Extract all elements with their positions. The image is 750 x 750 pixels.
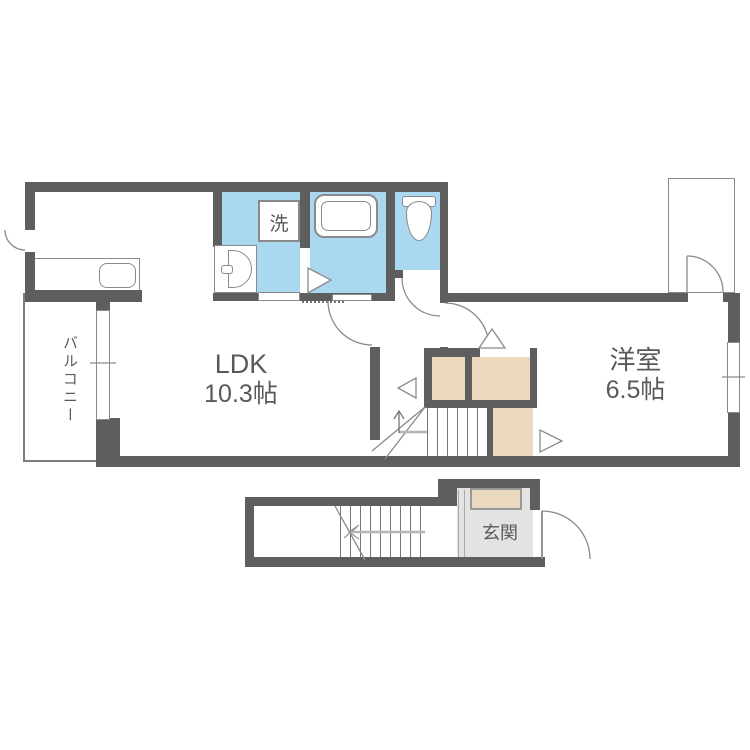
wall-segment [530, 479, 540, 510]
wall-segment [440, 192, 448, 303]
ldk-door-arc [328, 301, 372, 345]
wall-segment [25, 192, 35, 230]
wall-segment [96, 456, 740, 467]
sliding-door-leaf [258, 292, 300, 301]
wall-segment [728, 302, 740, 342]
bedroom-label: 洋室 6.5帖 [553, 346, 718, 405]
left-window-arc [5, 230, 25, 250]
sliding-door-track [302, 301, 344, 303]
entrance-step-line [458, 490, 459, 557]
wall-segment [448, 479, 540, 488]
entrance-door-arc [542, 511, 590, 559]
closet3-folding-door [540, 430, 562, 452]
balcony-label: バルコニー [40, 320, 80, 440]
closet-2 [472, 357, 530, 400]
porch-outline [668, 178, 735, 293]
shoe-cabinet [470, 488, 522, 510]
wall-segment [245, 497, 457, 506]
washbasin-faucet [221, 265, 233, 274]
closet-3 [493, 408, 533, 457]
wall-segment [465, 357, 472, 400]
floor-plan: バルコニー 玄関 [0, 0, 750, 750]
ldk-label: LDK 10.3帖 [152, 349, 330, 409]
wall-segment [448, 293, 688, 302]
wall-segment [25, 290, 142, 302]
wall-segment [213, 293, 258, 301]
wall-segment [424, 348, 480, 357]
kitchen-sink [99, 263, 136, 288]
lower-stairs-treads [340, 506, 425, 557]
upper-stairs-diagonal [385, 407, 425, 459]
ldk-door-leaf [332, 294, 372, 301]
wall-segment [386, 270, 403, 278]
bathtub-inner [321, 201, 371, 231]
wall-segment [530, 348, 537, 402]
wall-segment [487, 408, 493, 456]
wall-segment [245, 557, 545, 567]
bedroom-size: 6.5帖 [553, 376, 718, 405]
wall-segment [386, 192, 395, 301]
wall-segment [723, 293, 740, 302]
laundry-label: 洗 [258, 209, 300, 236]
closet2-folding-door [479, 329, 505, 348]
entrance-label: 玄関 [462, 519, 538, 545]
wall-segment [300, 192, 310, 248]
bedroom-door-arc [445, 303, 489, 347]
ldk-name: LDK [152, 349, 330, 380]
ldk-size: 10.3帖 [152, 380, 330, 409]
bedroom-window [727, 342, 740, 413]
upper-stairs-treads [427, 407, 487, 456]
toilet-door-arc [402, 278, 440, 316]
bedroom-name: 洋室 [553, 346, 718, 376]
wall-segment [424, 357, 432, 400]
closet-1 [432, 357, 465, 400]
up-arrow-head [394, 411, 404, 419]
wall-segment [25, 182, 448, 192]
closet1-folding-door [398, 378, 416, 398]
wall-segment [213, 182, 222, 247]
wall-segment [370, 347, 380, 440]
balcony-window [96, 310, 110, 420]
wall-segment [728, 413, 740, 456]
